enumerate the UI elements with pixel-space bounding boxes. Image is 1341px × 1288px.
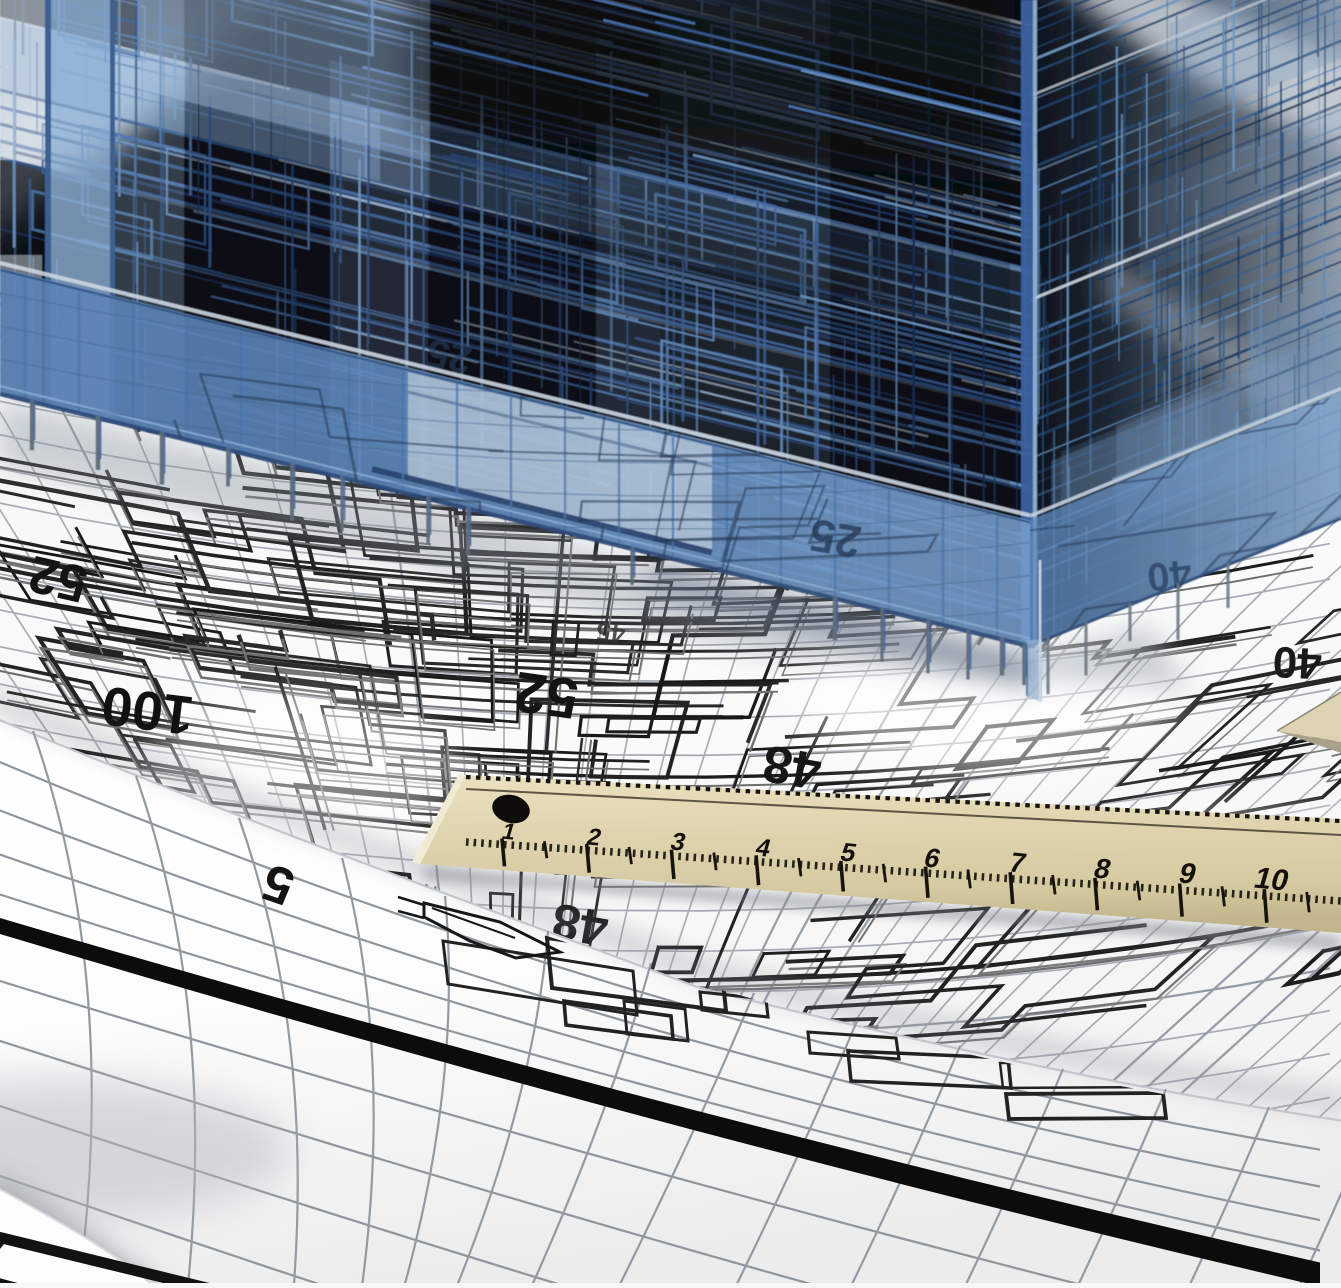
svg-text:40: 40	[1145, 551, 1194, 599]
svg-text:100: 100	[98, 674, 197, 747]
svg-text:45: 45	[594, 616, 627, 650]
svg-text:52: 52	[511, 659, 583, 731]
svg-text:25: 25	[806, 509, 865, 569]
svg-text:40: 40	[1272, 637, 1323, 688]
svg-text:25: 25	[423, 330, 476, 382]
